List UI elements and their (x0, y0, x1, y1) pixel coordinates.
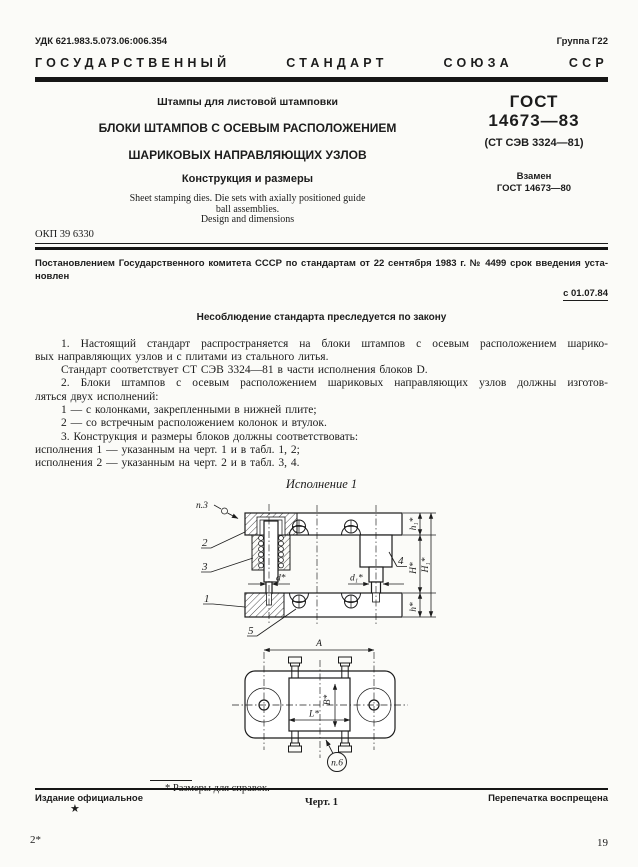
title-block: Штампы для листовой штамповки БЛОКИ ШТАМ… (35, 82, 608, 226)
title-en-line: Design and dimensions (35, 215, 460, 226)
okp-code: ОКП 39 6330 (35, 229, 608, 240)
svg-text:5: 5 (248, 625, 254, 637)
replaces-note: Взамен ГОСТ 14673—80 (460, 171, 608, 194)
banner-word: ГОСУДАРСТВЕННЫЙ (35, 56, 230, 70)
replaces-number: ГОСТ 14673—80 (460, 183, 608, 195)
body-line: 1. Настоящий стандарт распространяется н… (35, 338, 608, 351)
decree-line: Постановлением Государственного комитета… (35, 257, 608, 270)
standard-title-ru-line2: ШАРИКОВЫХ НАПРАВЛЯЮЩИХ УЗЛОВ (35, 148, 460, 162)
svg-text:А: А (315, 639, 322, 649)
svg-text:3: 3 (201, 561, 208, 573)
banner-word: ССР (569, 56, 608, 70)
svg-text:п.6: п.6 (331, 759, 343, 769)
gost-word: ГОСТ (460, 92, 608, 111)
callout-p3: п.3 (196, 501, 238, 519)
footnote-rule (150, 780, 192, 781)
body-line: 2. Блоки штампов с осевым расположением … (35, 377, 608, 390)
svg-text:h*: h* (409, 602, 419, 612)
udk-code: УДК 621.983.5.073.06:006.354 (35, 36, 167, 47)
decree-text: Постановлением Государственного комитета… (35, 257, 608, 283)
gost-banner: ГОСУДАРСТВЕННЫЙ СТАНДАРТ СОЮЗА ССР (35, 56, 608, 82)
body-line: исполнения 2 — указанным на черт. 2 и в … (35, 457, 608, 470)
body-line: исполнения 1 — указанным на черт. 1 и в … (35, 444, 608, 457)
svg-text:В*: В* (323, 695, 333, 706)
official-edition-label: Издание официальное (35, 793, 143, 804)
law-notice: Несоблюдение стандарта преследуется по з… (35, 312, 608, 323)
sheet-marker: 2* (30, 834, 41, 846)
svg-text:d₁*: d₁* (350, 574, 363, 584)
svg-text:Н*: Н* (409, 562, 419, 575)
top-reference-row: УДК 621.983.5.073.06:006.354 Группа Г22 (35, 36, 608, 47)
footer-rule (35, 788, 608, 790)
plan-view: А (232, 639, 408, 772)
body-line: 1 — с колонками, закрепленными в нижней … (35, 404, 608, 417)
reprint-prohibited-label: Перепечатка воспрещена (488, 793, 608, 804)
st-sev-reference: (СТ СЭВ 3324—81) (460, 137, 608, 149)
section-view: d* d₁* h₁* Н* h* Н₁* п.3 (196, 501, 436, 637)
effective-date: с 01.07.84 (563, 288, 608, 301)
svg-text:d*: d* (276, 574, 286, 584)
body-line: ляться двух исполнений: (35, 391, 608, 404)
svg-text:п.3: п.3 (196, 501, 208, 511)
gost-standard-page: УДК 621.983.5.073.06:006.354 Группа Г22 … (0, 0, 638, 867)
body-line: 3. Конструкция и размеры блоков должны с… (35, 431, 608, 444)
thick-divider (35, 247, 608, 250)
height-dimensions: h₁* Н* h* Н₁* (403, 513, 436, 617)
svg-text:2: 2 (202, 537, 208, 549)
standard-title-en: Sheet stamping dies. Die sets with axial… (35, 194, 460, 226)
callout-p6: п.6 (326, 740, 347, 772)
figure-caption: Исполнение 1 (35, 477, 608, 492)
banner-word: СТАНДАРТ (286, 56, 387, 70)
star-mark: ★ (70, 802, 80, 815)
svg-text:L*: L* (307, 710, 318, 720)
designation-column: ГОСТ 14673—83 (СТ СЭВ 3324—81) Взамен ГО… (460, 82, 608, 226)
dimension-A: А (264, 639, 374, 650)
subject-title: Штампы для листовой штамповки (35, 96, 460, 108)
standard-body-text: 1. Настоящий стандарт распространяется н… (35, 338, 608, 471)
standard-title-ru-line1: БЛОКИ ШТАМПОВ С ОСЕВЫМ РАСПОЛОЖЕНИЕМ (35, 121, 460, 135)
body-line: Стандарт соответствует СТ СЭВ 3324—81 в … (35, 364, 608, 377)
svg-text:h₁*: h₁* (409, 518, 419, 531)
svg-text:Н₁*: Н₁* (421, 558, 431, 574)
central-block (289, 678, 350, 731)
figure-drawing: d* d₁* h₁* Н* h* Н₁* п.3 (172, 490, 472, 780)
title-en-line: Sheet stamping dies. Die sets with axial… (35, 194, 460, 205)
body-line: 2 — со встречным расположением колонок и… (35, 417, 608, 430)
title-left-column: Штампы для листовой штамповки БЛОКИ ШТАМ… (35, 82, 460, 226)
decree-line: новлен (35, 270, 608, 283)
svg-text:4: 4 (398, 555, 404, 567)
replaces-label: Взамен (460, 171, 608, 183)
gost-number: 14673—83 (460, 111, 608, 130)
svg-text:1: 1 (204, 593, 210, 605)
gost-designation: ГОСТ 14673—83 (460, 92, 608, 130)
group-label: Группа Г22 (557, 36, 608, 47)
standard-subtitle: Конструкция и размеры (35, 173, 460, 185)
lower-plate-section-hatch (245, 593, 284, 617)
thin-divider (35, 243, 608, 244)
banner-word: СОЮЗА (444, 56, 513, 70)
page-number: 19 (597, 837, 608, 849)
footer-row: Издание официальное Перепечатка воспреще… (35, 793, 608, 804)
body-line: вых направляющих узлов и с плитами из ст… (35, 351, 608, 364)
